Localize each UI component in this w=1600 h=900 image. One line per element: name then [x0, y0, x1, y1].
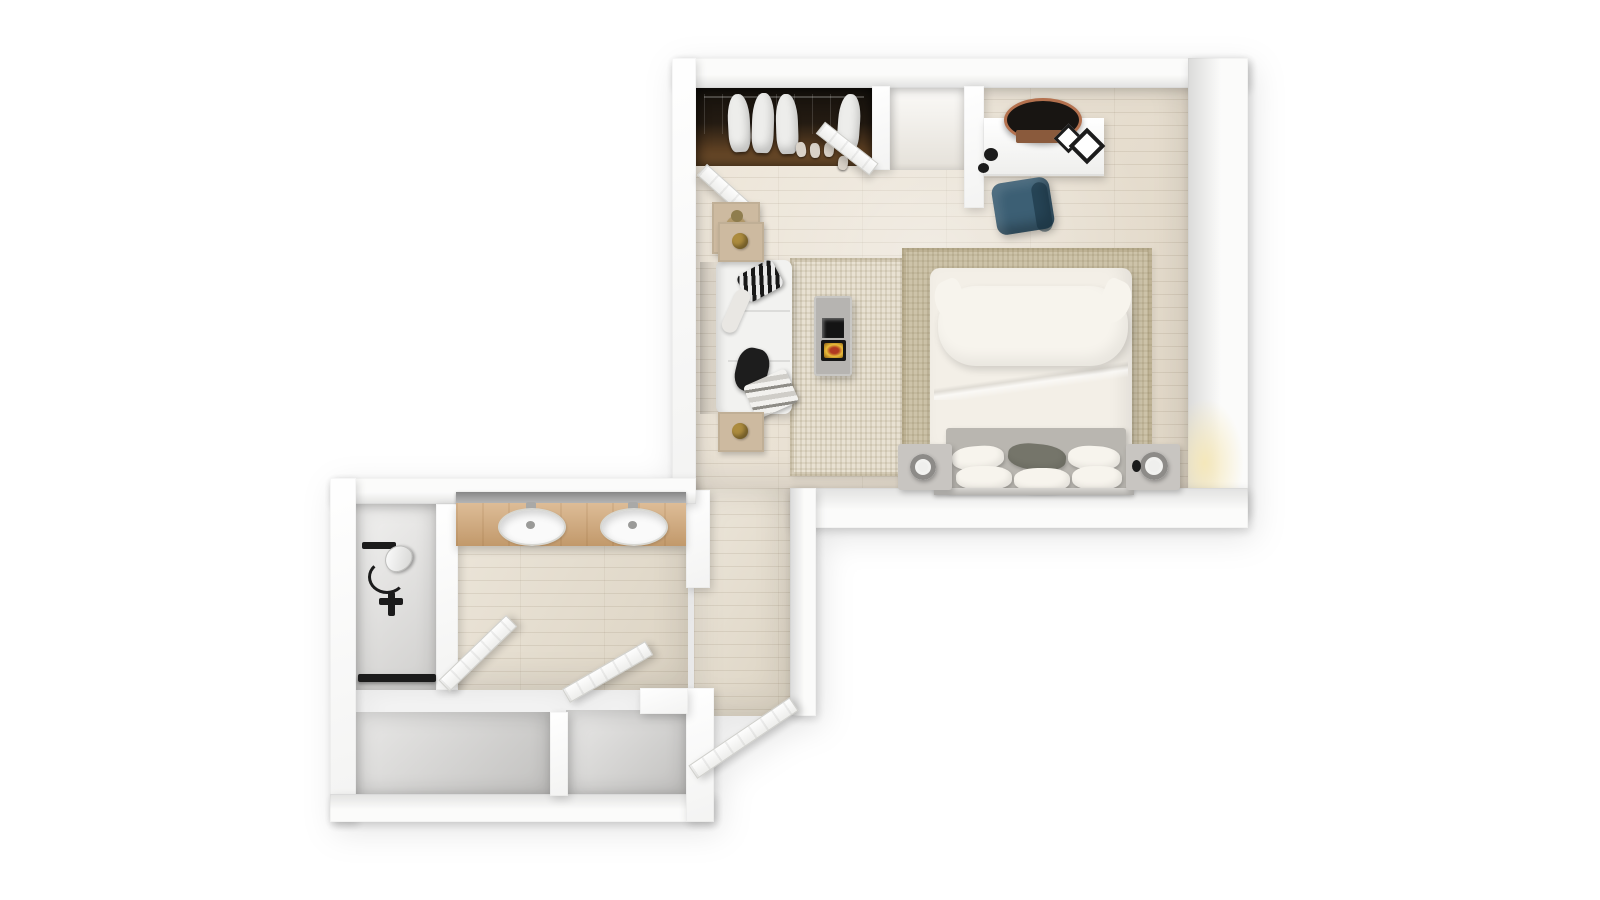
- apartment-plan: [0, 0, 1600, 900]
- brass-lamp-top-table: [732, 233, 748, 249]
- shoe-pair-2: [809, 143, 820, 159]
- storage-left-floor: [356, 712, 552, 796]
- corridor-wall-right: [790, 488, 816, 716]
- bedroom-wall-right: [1188, 58, 1248, 516]
- sink-right-drain: [628, 521, 637, 529]
- entry-niche-floor: [890, 88, 964, 170]
- bathroom-wall-left: [330, 478, 356, 822]
- fire-glow: [824, 343, 843, 358]
- sink-left-drain: [526, 521, 535, 529]
- wardrobe-pier-wall: [872, 86, 890, 170]
- bedroom-wall-top: [672, 58, 1248, 88]
- brass-decor-bottom-table: [732, 423, 748, 439]
- vanity-mirror: [456, 492, 686, 503]
- stove-picture: [822, 318, 844, 338]
- fireplace-stove: [814, 296, 852, 376]
- shower-wall-right: [436, 504, 458, 690]
- lamp-knob-right: [1132, 460, 1141, 472]
- stove-fire-window: [821, 340, 846, 361]
- desk-lamp: [984, 148, 998, 161]
- storage-divider-wall: [550, 712, 568, 796]
- plant-sprig: [731, 210, 743, 222]
- shower-hose: [368, 560, 406, 594]
- table-lamp-left: [910, 454, 936, 480]
- small-pillow-4: [956, 466, 1012, 490]
- table-lamp-right: [1140, 452, 1168, 480]
- hanging-garment-2: [751, 93, 775, 154]
- headboard-base-shelf: [934, 488, 1134, 495]
- storage-right-floor: [566, 710, 688, 796]
- shower-threshold: [358, 674, 436, 682]
- desk-lamp-base: [978, 163, 989, 173]
- small-pillow-6: [1072, 466, 1122, 490]
- bathroom-wall-bottom: [330, 794, 714, 822]
- shower-handle-bar: [379, 598, 403, 605]
- duvet-fold-line: [934, 360, 1128, 400]
- midzone-bottom-wall: [640, 688, 688, 714]
- bedroom-wall-left: [672, 58, 696, 492]
- shower-room-floor: [356, 502, 438, 690]
- desk-partition-wall: [964, 86, 984, 208]
- vanity-corridor-wall: [686, 490, 710, 588]
- floor-plan-render: [0, 0, 1600, 900]
